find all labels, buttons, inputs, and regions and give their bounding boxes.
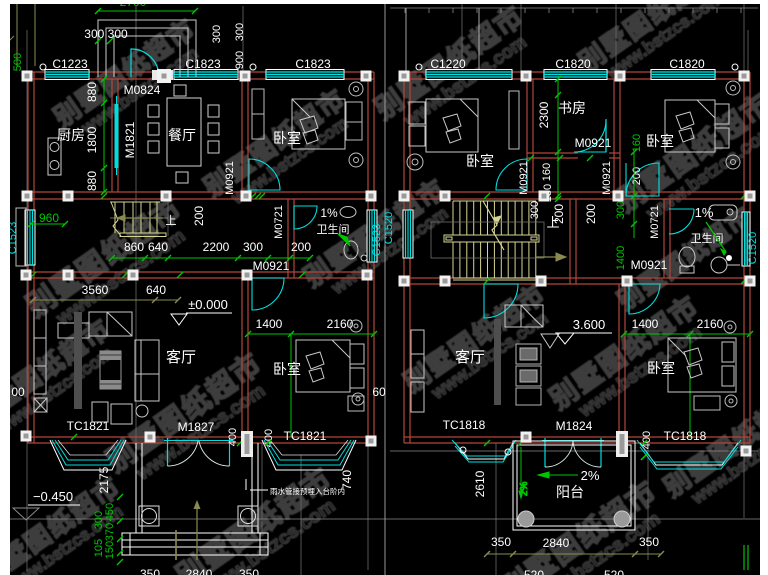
svg-text:客厅: 客厅 (455, 349, 485, 366)
svg-text:M1821: M1821 (123, 121, 137, 158)
svg-text:300: 300 (243, 240, 263, 254)
svg-text:1400: 1400 (256, 317, 283, 331)
svg-text:2%: 2% (519, 481, 530, 496)
svg-text:±0.000: ±0.000 (188, 297, 228, 312)
svg-text:卧室: 卧室 (646, 133, 674, 149)
svg-text:卧室: 卧室 (466, 153, 494, 169)
svg-text:880: 880 (85, 82, 99, 102)
svg-text:1400: 1400 (615, 246, 627, 270)
svg-text:C1220: C1220 (430, 57, 466, 71)
svg-text:2160: 2160 (327, 317, 354, 331)
svg-text:520: 520 (524, 568, 544, 575)
svg-text:350: 350 (140, 567, 160, 575)
svg-text:M0921: M0921 (631, 258, 668, 272)
svg-text:阳台: 阳台 (556, 484, 584, 500)
svg-text:餐厅: 餐厅 (168, 127, 196, 143)
svg-text:C1520: C1520 (747, 232, 759, 264)
svg-text:C1223: C1223 (52, 57, 88, 71)
svg-text:−0.450: −0.450 (33, 489, 73, 504)
svg-text:TC1818: TC1818 (443, 418, 486, 432)
svg-text:卧室: 卧室 (273, 130, 301, 146)
svg-text:2840: 2840 (186, 567, 213, 575)
svg-text:880: 880 (85, 171, 99, 191)
svg-text:TC1818: TC1818 (664, 429, 707, 443)
svg-text:900: 900 (234, 51, 246, 69)
svg-text:960: 960 (39, 211, 59, 225)
svg-text:雨水管接预埋入台阶内: 雨水管接预埋入台阶内 (270, 486, 345, 496)
svg-text:300: 300 (234, 23, 246, 41)
svg-text:1800: 1800 (85, 126, 99, 153)
svg-text:200: 200 (192, 206, 206, 226)
svg-text:1%: 1% (695, 205, 714, 220)
svg-text:2175: 2175 (97, 466, 111, 493)
svg-text:160: 160 (541, 163, 553, 181)
svg-text:M0921: M0921 (224, 161, 236, 195)
svg-text:M0721: M0721 (273, 205, 285, 239)
svg-text:200: 200 (584, 204, 598, 224)
svg-text:客厅: 客厅 (166, 349, 196, 366)
svg-text:1%: 1% (320, 206, 338, 220)
svg-text:300: 300 (93, 511, 105, 529)
svg-text:640: 640 (148, 240, 168, 254)
svg-text:300: 300 (615, 201, 627, 219)
svg-text:300: 300 (211, 25, 223, 43)
svg-text:640: 640 (146, 283, 166, 297)
svg-text:卫生间: 卫生间 (317, 222, 350, 236)
svg-text:M0921: M0921 (518, 161, 530, 195)
svg-text:200: 200 (291, 240, 311, 254)
svg-text:M0824: M0824 (124, 83, 161, 97)
svg-text:M0721: M0721 (649, 205, 661, 239)
svg-text:370: 370 (104, 523, 116, 541)
svg-text:105: 105 (93, 539, 105, 557)
svg-text:C1820: C1820 (555, 57, 591, 71)
svg-text:60: 60 (372, 385, 386, 399)
svg-text:3560: 3560 (82, 283, 109, 297)
svg-text:C1823: C1823 (185, 57, 221, 71)
svg-text:450: 450 (104, 503, 116, 521)
svg-text:卫生间: 卫生间 (691, 231, 724, 245)
svg-text:书房: 书房 (558, 100, 586, 116)
svg-text:2840: 2840 (543, 536, 570, 550)
svg-text:2610: 2610 (473, 470, 487, 497)
svg-text:1400: 1400 (632, 317, 659, 331)
svg-text:M1824: M1824 (556, 419, 593, 433)
svg-text:150: 150 (104, 541, 116, 559)
svg-text:TC1821: TC1821 (284, 429, 327, 443)
svg-text:00: 00 (11, 385, 25, 399)
svg-text:200: 200 (631, 167, 643, 185)
svg-text:上: 上 (166, 214, 177, 227)
svg-text:350: 350 (639, 535, 659, 549)
svg-text:M0921: M0921 (601, 161, 613, 195)
svg-text:上: 上 (546, 215, 559, 230)
svg-text:C1520: C1520 (383, 212, 395, 244)
svg-text:500: 500 (12, 53, 24, 71)
svg-text:M1827: M1827 (178, 420, 215, 434)
svg-text:350: 350 (239, 567, 259, 575)
svg-text:2300: 2300 (537, 101, 551, 128)
svg-text:卧室: 卧室 (273, 361, 301, 377)
svg-text:TC1821: TC1821 (67, 419, 110, 433)
svg-text:C1523: C1523 (371, 224, 383, 256)
svg-text:2200: 2200 (203, 240, 230, 254)
svg-text:860: 860 (124, 240, 144, 254)
svg-text:2160: 2160 (697, 317, 724, 331)
svg-text:520: 520 (604, 568, 624, 575)
svg-text:M0921: M0921 (253, 259, 290, 273)
svg-text:300 300: 300 300 (84, 27, 128, 41)
svg-text:M0921: M0921 (575, 136, 612, 150)
svg-text:2%: 2% (581, 468, 600, 483)
svg-text:C1820: C1820 (669, 57, 705, 71)
svg-text:300: 300 (529, 201, 541, 219)
svg-text:3.600: 3.600 (573, 317, 606, 332)
svg-text:卧室: 卧室 (647, 360, 675, 376)
svg-text:350: 350 (491, 535, 511, 549)
svg-text:400: 400 (227, 428, 239, 446)
svg-text:C1823: C1823 (295, 57, 331, 71)
